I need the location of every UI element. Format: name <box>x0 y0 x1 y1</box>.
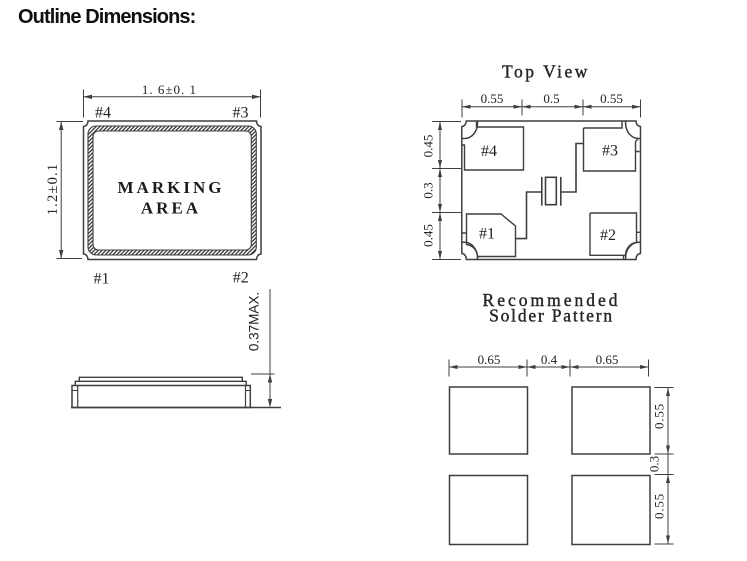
svg-text:Solder Pattern: Solder Pattern <box>489 306 614 326</box>
svg-text:#3: #3 <box>233 105 249 122</box>
svg-text:0.55: 0.55 <box>481 91 504 106</box>
svg-text:MARKING: MARKING <box>118 178 225 197</box>
svg-text:1. 6±0. 1: 1. 6±0. 1 <box>142 82 197 97</box>
svg-text:0.55: 0.55 <box>652 403 667 429</box>
svg-text:0.65: 0.65 <box>596 352 619 367</box>
svg-text:#2: #2 <box>600 227 616 244</box>
svg-text:#2: #2 <box>233 270 249 287</box>
svg-text:0.45: 0.45 <box>421 135 436 158</box>
svg-text:#4: #4 <box>95 105 111 122</box>
svg-text:0.45: 0.45 <box>421 224 436 247</box>
svg-text:1.2±0.1: 1.2±0.1 <box>45 163 61 216</box>
svg-text:0.3: 0.3 <box>421 182 436 198</box>
svg-text:#4: #4 <box>481 143 497 160</box>
svg-text:0.3: 0.3 <box>647 456 662 472</box>
svg-text:AREA: AREA <box>141 198 201 217</box>
svg-text:0.55: 0.55 <box>652 493 667 519</box>
svg-text:0.65: 0.65 <box>478 352 501 367</box>
svg-text:#1: #1 <box>94 271 110 288</box>
svg-text:0.5: 0.5 <box>543 91 559 106</box>
svg-text:#3: #3 <box>602 143 618 160</box>
svg-text:0.37MAX.: 0.37MAX. <box>247 292 262 351</box>
svg-text:0.55: 0.55 <box>600 91 623 106</box>
svg-text:#1: #1 <box>479 226 495 243</box>
svg-text:0.4: 0.4 <box>541 352 558 367</box>
svg-text:Top View: Top View <box>502 62 590 82</box>
